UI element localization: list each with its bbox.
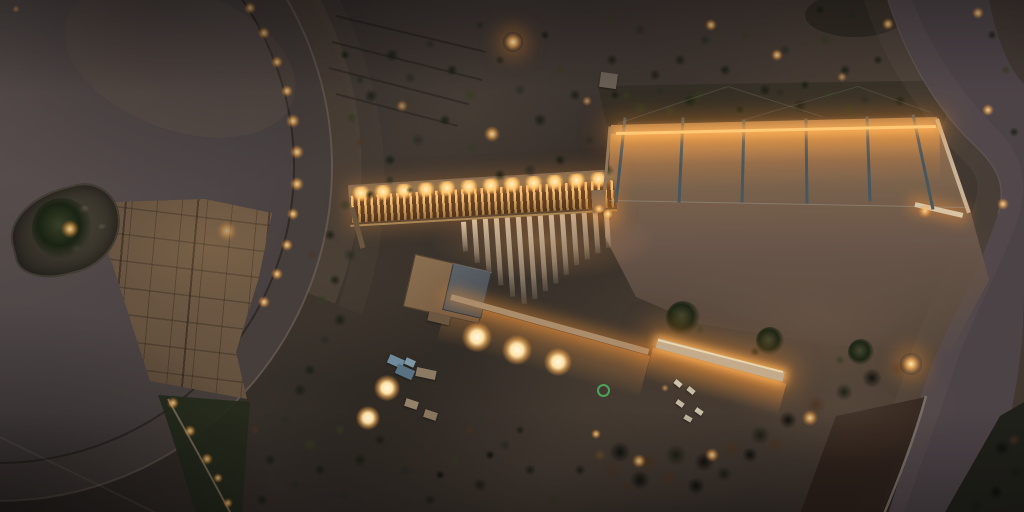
shrub — [699, 34, 711, 46]
shrub — [555, 65, 565, 75]
roof-stripe — [515, 209, 526, 304]
canopy-downlight — [417, 182, 435, 198]
shrub — [548, 493, 562, 507]
garden-uplight — [900, 353, 922, 375]
shrub — [540, 30, 550, 40]
deck-glow — [217, 221, 237, 241]
shrub — [779, 411, 797, 429]
shrub — [665, 444, 687, 466]
plaza-edge-light — [290, 145, 304, 159]
shrub — [862, 368, 882, 388]
shrub — [835, 355, 845, 365]
shrub — [324, 229, 336, 241]
shrub — [606, 54, 618, 66]
shrub — [346, 112, 358, 124]
shrub — [1009, 127, 1019, 137]
shrub — [634, 24, 646, 36]
shrub — [523, 163, 537, 177]
shrub — [384, 154, 396, 166]
shrub — [1008, 464, 1024, 480]
planter-uplight — [61, 220, 79, 238]
shrub — [307, 250, 317, 260]
shrub — [610, 90, 620, 100]
shrub — [687, 477, 705, 495]
plaza-edge-light — [271, 56, 283, 68]
shrub — [609, 441, 631, 463]
shrub — [303, 438, 317, 452]
shrub — [554, 154, 566, 166]
roof-stripe — [548, 204, 558, 284]
path-light — [837, 72, 847, 82]
step-light — [223, 498, 233, 508]
shrub — [735, 105, 745, 115]
shrub — [385, 175, 395, 185]
roof-stripe — [504, 211, 514, 297]
shrub — [859, 94, 871, 106]
roof-stripe — [472, 219, 480, 263]
shrub — [524, 464, 536, 476]
shrub — [293, 383, 307, 397]
shrub — [514, 84, 526, 96]
shrub — [264, 454, 276, 466]
shrub — [365, 190, 375, 200]
shrub — [494, 169, 506, 181]
shrub — [844, 102, 856, 114]
step-light — [184, 425, 196, 437]
shrub — [569, 89, 581, 101]
shrub — [621, 90, 631, 100]
shrub — [404, 72, 416, 84]
shrub — [719, 64, 731, 76]
path-light — [632, 454, 646, 468]
shrub — [333, 313, 347, 327]
shrub — [316, 294, 328, 306]
shrub — [835, 383, 853, 401]
shrub — [424, 494, 436, 506]
shrub — [319, 334, 331, 346]
shrub — [329, 274, 341, 286]
plaza-edge-light — [258, 296, 270, 308]
shrub — [343, 248, 357, 262]
shrub — [465, 425, 475, 435]
path-light — [705, 19, 717, 31]
step-light — [167, 397, 179, 409]
path-light — [972, 7, 984, 19]
dome-skylight — [502, 335, 532, 365]
plaza-edge-light — [244, 2, 256, 14]
shrub — [847, 10, 857, 20]
plaza-edge-light — [281, 239, 293, 251]
shrub — [495, 55, 505, 65]
garden-uplight — [503, 32, 523, 52]
shrub — [988, 484, 1004, 500]
shrub — [1008, 434, 1020, 446]
shrub — [767, 437, 783, 453]
shrub — [398, 463, 412, 477]
shrub — [716, 466, 732, 482]
shrub — [674, 54, 686, 66]
path-light — [12, 5, 20, 13]
tree — [756, 327, 784, 355]
shrub — [605, 15, 615, 25]
roof-stripe — [483, 216, 492, 274]
shrub — [815, 5, 825, 15]
shrub — [655, 86, 665, 96]
shrub — [374, 434, 386, 446]
aerial-photo-scene — [0, 0, 1024, 512]
shrub — [740, 30, 750, 40]
shrub — [435, 470, 445, 480]
shrub — [466, 142, 478, 154]
shrub — [574, 464, 586, 476]
shrub — [314, 464, 326, 476]
shrub — [256, 494, 268, 506]
path-light — [982, 104, 994, 116]
path-light — [705, 448, 719, 462]
shrub — [355, 137, 365, 147]
shrub — [406, 186, 414, 194]
shrub — [339, 489, 351, 501]
shrub — [463, 88, 477, 102]
shrub — [969, 499, 983, 512]
path-light — [582, 96, 592, 106]
tree — [666, 301, 700, 335]
canopy-downlight — [460, 179, 478, 195]
shrub — [873, 55, 883, 65]
canopy-downlight — [568, 173, 586, 189]
shrub — [594, 449, 606, 461]
shrub — [533, 113, 547, 127]
dome-skylight — [462, 322, 492, 352]
shrub — [353, 453, 367, 467]
path-light — [484, 126, 500, 142]
roof-stripe — [537, 205, 547, 291]
shrub — [603, 461, 621, 479]
dome-skylight — [374, 375, 400, 401]
plaza-edge-light — [281, 85, 293, 97]
path-light — [997, 198, 1009, 210]
shrub — [649, 69, 661, 81]
canopy-downlight — [546, 174, 564, 190]
shrub — [742, 447, 758, 463]
shrub — [475, 20, 485, 30]
canopy-downlight — [374, 184, 392, 200]
shrub — [499, 439, 511, 451]
plaza-edge-light — [286, 114, 300, 128]
green-ring-marker — [597, 384, 610, 397]
roof-stripe — [493, 213, 503, 285]
path-light — [396, 100, 408, 112]
shrub — [411, 133, 425, 147]
shrub — [279, 414, 291, 426]
roof-stripe — [526, 207, 537, 299]
shrub — [800, 80, 810, 90]
shrub — [485, 450, 495, 460]
roof-stripe — [461, 222, 468, 252]
led-glow-wash — [609, 126, 940, 189]
plaza-edge-light — [271, 268, 283, 280]
plaza-edge-light — [287, 208, 299, 220]
canopy-downlight — [503, 177, 521, 193]
shrub — [334, 424, 346, 436]
shrub — [723, 439, 741, 457]
shrub — [759, 84, 771, 96]
shrub — [584, 134, 596, 146]
path-light — [661, 384, 669, 392]
canopy-end-light — [602, 208, 614, 220]
canopy-downlight — [438, 181, 456, 197]
step-light — [201, 453, 213, 465]
terrace-corner-light — [918, 204, 932, 218]
shrub — [819, 34, 831, 46]
shrub — [288, 478, 302, 492]
shrub — [340, 50, 350, 60]
shrub — [987, 30, 997, 40]
plaza-edge-light — [290, 177, 304, 191]
dome-skylight — [544, 348, 572, 376]
shrub — [449, 454, 461, 466]
step-light — [213, 473, 223, 483]
shrub — [515, 425, 525, 435]
path-light — [591, 429, 601, 439]
shrub — [630, 470, 650, 490]
shrub — [1001, 65, 1011, 75]
path-light — [771, 49, 783, 61]
plaza-edge-light — [258, 27, 270, 39]
dome-skylight — [356, 406, 380, 430]
path-light — [882, 18, 894, 30]
utility-pad — [599, 72, 618, 89]
canopy-downlight — [525, 176, 543, 192]
shrub — [250, 425, 260, 435]
shrub — [473, 478, 487, 492]
shrub — [304, 364, 316, 376]
tree — [848, 339, 874, 365]
path-light — [802, 410, 818, 426]
shrub — [659, 469, 677, 487]
shrub — [775, 88, 785, 98]
